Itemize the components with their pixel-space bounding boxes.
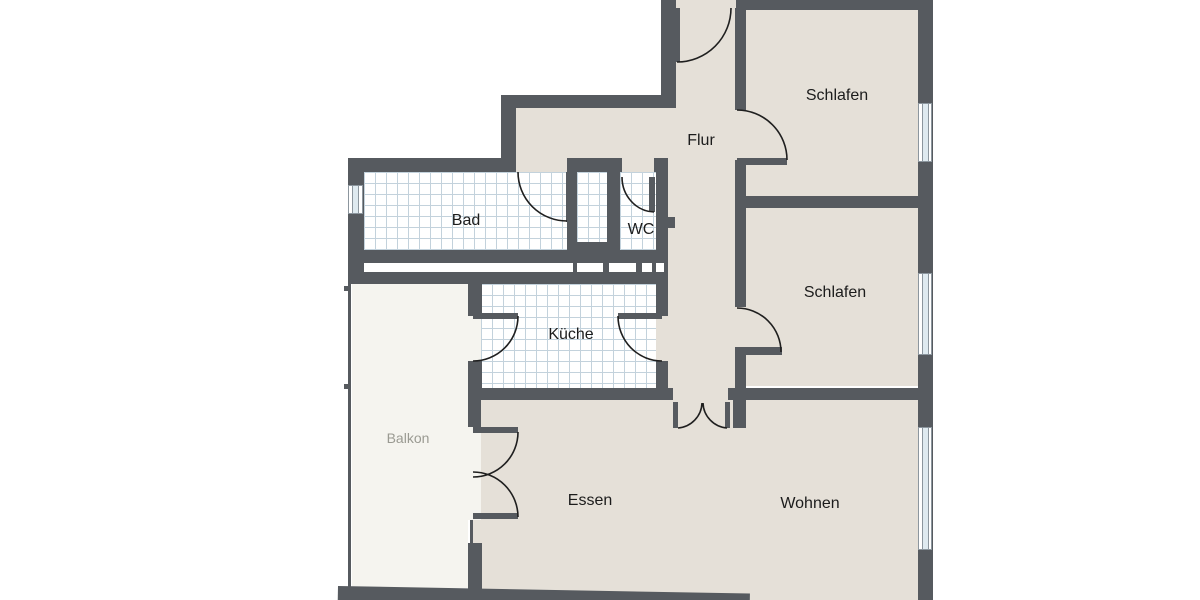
room-label-schlafen-top: Schlafen (806, 87, 868, 105)
room-label-kueche: Küche (548, 326, 593, 344)
room-label-balkon: Balkon (387, 430, 430, 446)
schlafen-bottom-door-arc (737, 308, 781, 352)
bad-door-arc (518, 172, 567, 221)
swing-door-arc-right (703, 403, 727, 428)
essen-door-arc-bottom (473, 472, 518, 517)
essen-door-arc-top (473, 432, 518, 477)
swing-door-arc-left (678, 403, 702, 428)
room-label-bad: Bad (452, 212, 480, 230)
door-arcs (0, 0, 1200, 600)
schlafen-top-door-arc (737, 110, 787, 160)
kueche-flur-door-arc (618, 316, 662, 361)
room-label-wohnen: Wohnen (780, 495, 839, 513)
entrance-door-arc (677, 8, 731, 62)
room-label-schlafen-bottom: Schlafen (804, 284, 866, 302)
room-label-wc: WC (628, 221, 655, 239)
floor-plan: Flur Schlafen Bad WC Schlafen Küche Balk… (0, 0, 1200, 600)
kueche-balkon-door-arc (473, 316, 518, 361)
wc-door-arc (622, 177, 654, 212)
room-label-flur: Flur (687, 132, 715, 150)
room-label-essen: Essen (568, 492, 612, 510)
